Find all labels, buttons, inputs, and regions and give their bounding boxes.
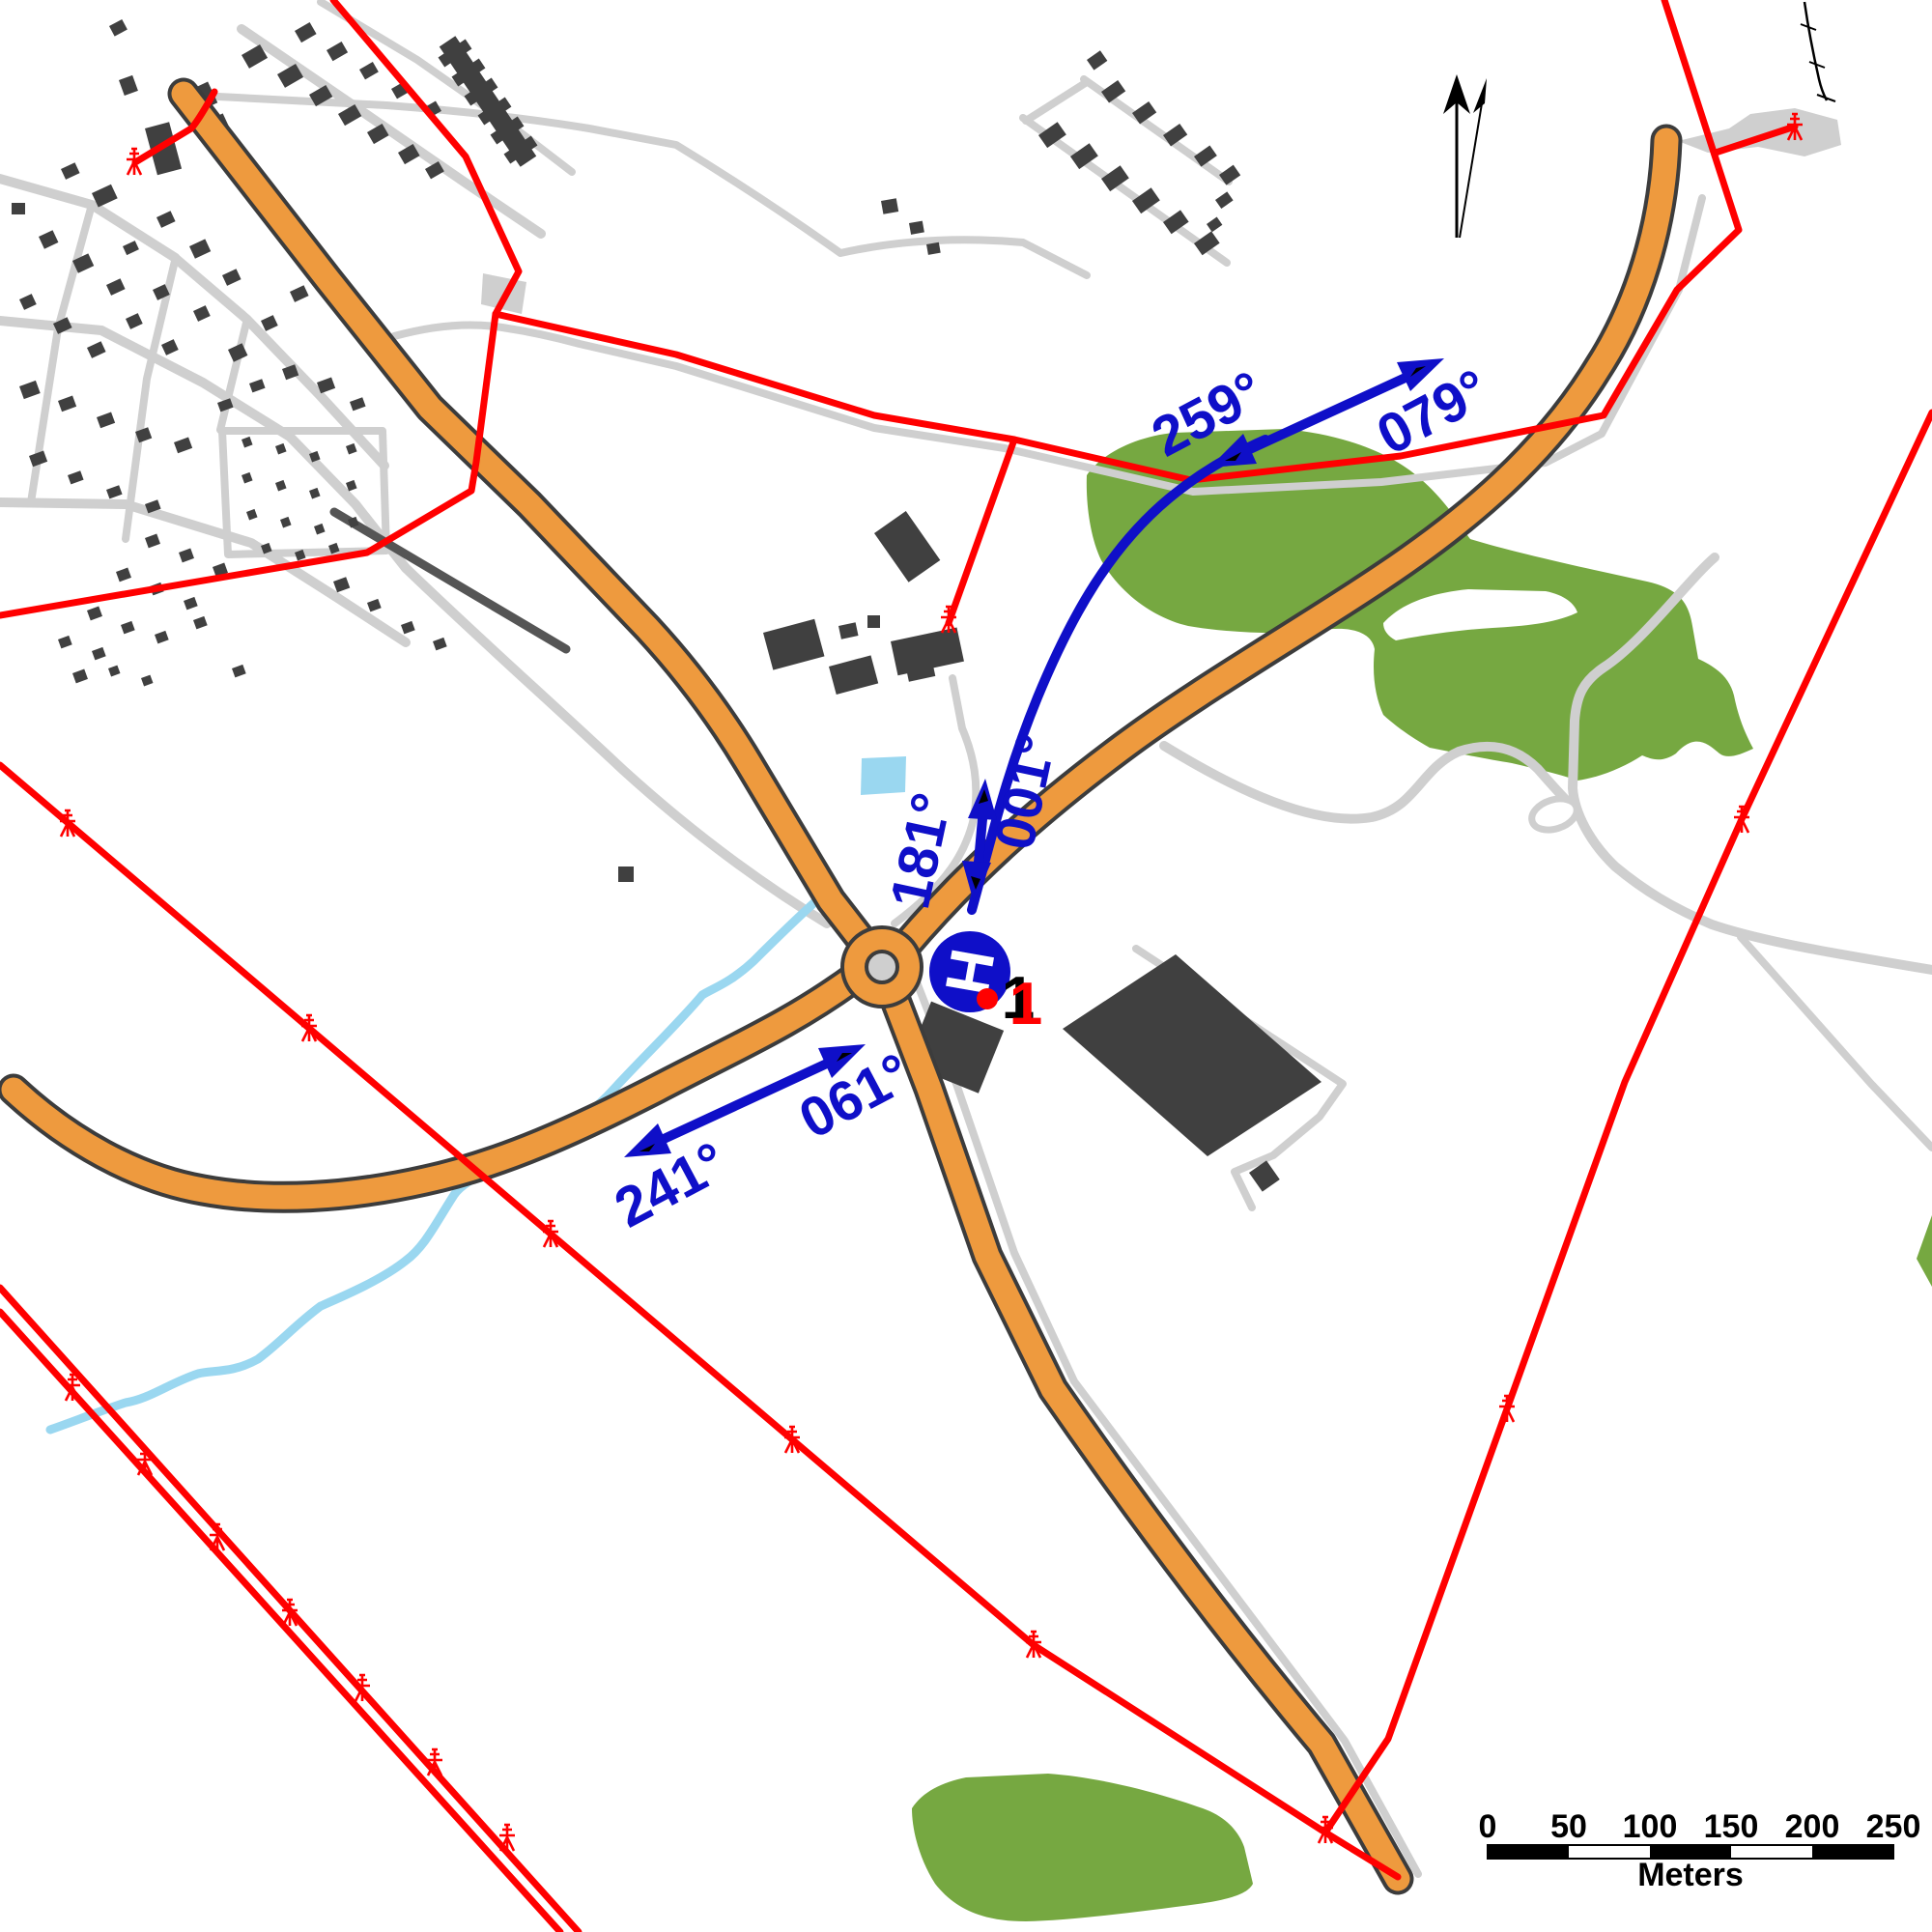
roundabout (855, 940, 909, 994)
terrace-building (439, 36, 538, 167)
factory-building (1063, 954, 1321, 1156)
bearing-arrow-site (979, 819, 982, 862)
scale-bar: 0 50 100 150 200 250 Meters (1479, 1808, 1921, 1893)
map-canvas: 259° 079° 181° 001° 241° 061° H 1 1 0 50… (0, 0, 1932, 1932)
forest-areas (912, 429, 1932, 1921)
scale-tick-50: 50 (1550, 1808, 1587, 1845)
buildings (12, 19, 1321, 1192)
bearing-label-001: 001° (982, 728, 1068, 855)
north-arrow-icon (1443, 74, 1487, 238)
turning-circle (1528, 793, 1581, 835)
site-number-label: 1 (1009, 971, 1042, 1037)
scale-tick-250: 250 (1866, 1808, 1921, 1845)
gis-map: 259° 079° 181° 001° 241° 061° H 1 1 0 50… (0, 0, 1932, 1932)
site-marker-dot (977, 988, 998, 1009)
pond (861, 756, 906, 795)
scale-tick-200: 200 (1785, 1808, 1840, 1845)
scale-unit-label: Meters (1637, 1857, 1744, 1893)
green-wedge (1917, 1215, 1932, 1287)
bearing-label-241: 241° (605, 1130, 736, 1240)
scale-tick-150: 150 (1704, 1808, 1759, 1845)
scale-tick-100: 100 (1623, 1808, 1678, 1845)
tree-row (334, 512, 566, 649)
water-features (50, 756, 906, 1430)
scale-tick-0: 0 (1479, 1808, 1497, 1845)
black-track (1801, 2, 1835, 101)
meadow-polygon (912, 1774, 1253, 1921)
